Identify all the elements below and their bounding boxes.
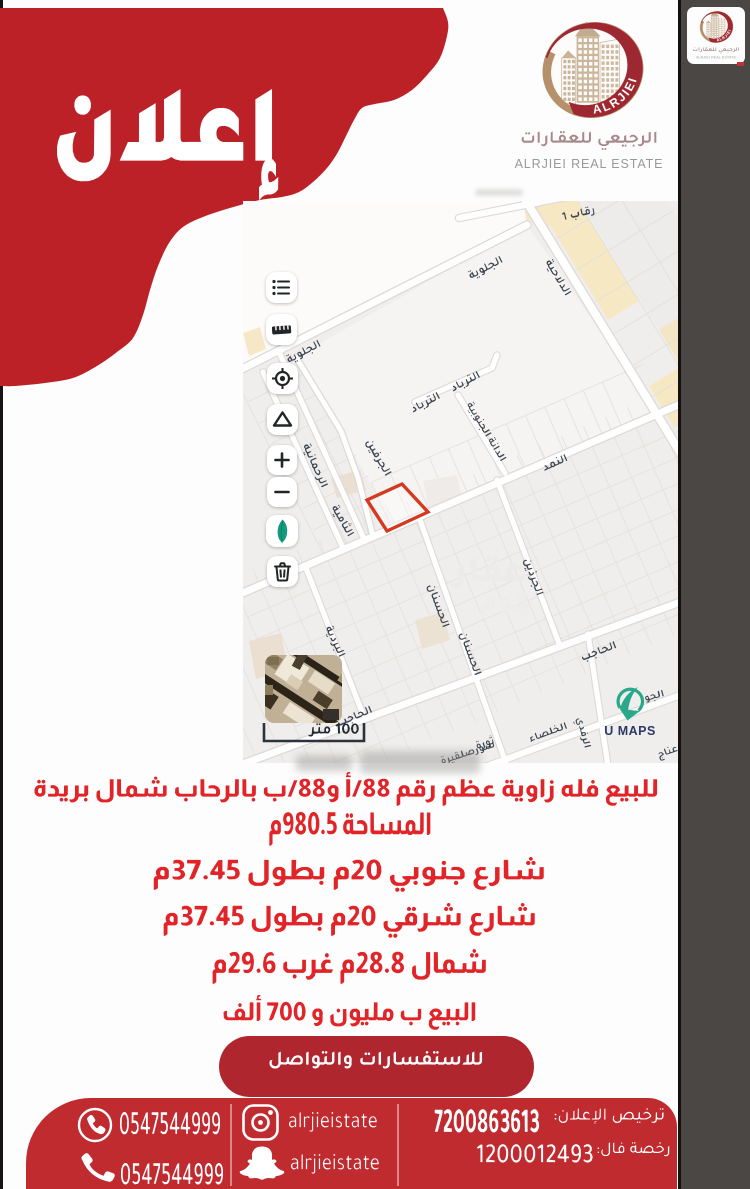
svg-text:ALRJIEI REAL ESTATE: ALRJIEI REAL ESTATE — [515, 157, 664, 171]
svg-text:ALRJIEI REAL ESTATE: ALRJIEI REAL ESTATE — [696, 56, 736, 60]
svg-text:U MAPS: U MAPS — [604, 724, 656, 738]
